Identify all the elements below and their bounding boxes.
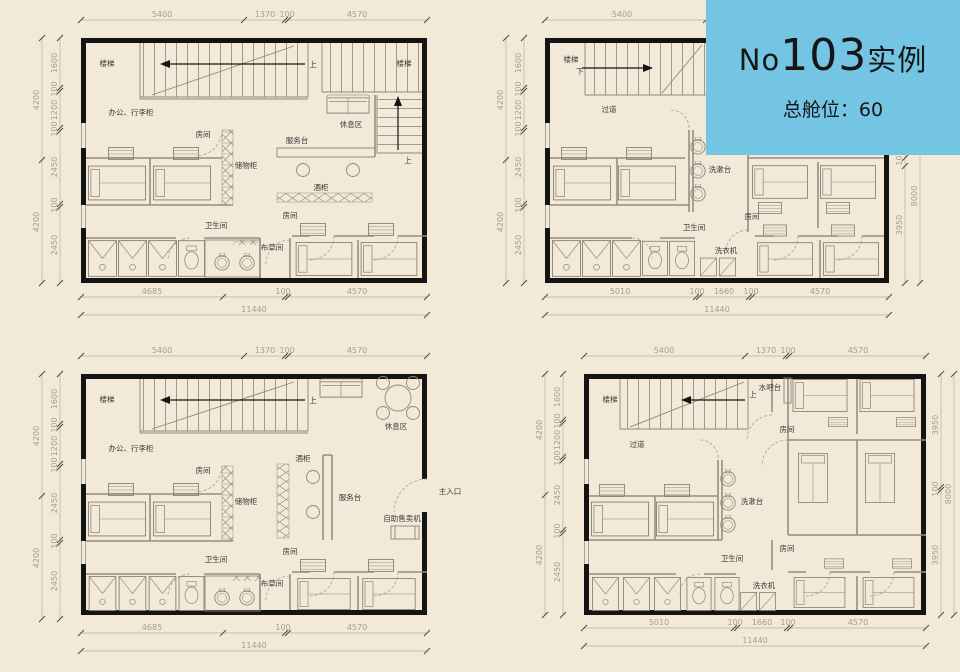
dim: 4570 [347,10,367,19]
dresser [828,417,848,426]
toilet [715,577,739,610]
shower-stall [612,241,640,277]
dresser [896,417,916,426]
dim: 1600 [514,53,523,73]
dim: 3950 [895,215,904,235]
label-lounge: 休息区 [340,119,363,129]
dim: 100 [514,197,523,212]
dresser [300,223,326,235]
dim: 4570 [347,287,367,296]
banner-no-prefix: No [739,43,780,77]
bed [553,166,610,200]
dim: 100 [553,450,562,465]
bed [591,502,648,536]
dim: 4200 [32,90,41,110]
dim: 3950 [931,545,940,565]
dim: 4685 [142,623,162,632]
dresser [826,202,850,213]
dim: 1660 [752,618,772,627]
bed [860,379,914,411]
label-room: 房间 [780,543,795,553]
washing-machine [740,593,756,611]
staircase [582,43,715,95]
dim: 100 [279,10,294,19]
label-lounge: 休息区 [385,421,408,431]
label-vending: 自助售卖机 [383,513,421,523]
dim: 4570 [347,623,367,632]
dim: 100 [50,121,59,136]
shower-stall [593,577,619,610]
floorplan-top-left: 5400 1370 100 4570 4200 4200 1600 100 12… [32,10,430,318]
shower-stall [89,576,116,610]
wash-basin [721,515,735,532]
dresser [599,484,625,496]
dim: 100 [50,417,59,432]
sink-basin [215,253,229,270]
dim: 1600 [50,389,59,409]
bed [361,242,417,275]
label-toilet: 卫生间 [721,553,744,563]
dim: 11440 [704,305,729,314]
label-corridor: 过道 [630,439,645,449]
dim: 5010 [610,287,630,296]
dim: 3950 [931,415,940,435]
dim: 2450 [553,562,562,582]
label-corridor: 过道 [602,104,617,114]
label-down: 下 [576,67,584,76]
label-service-desk: 服务台 [339,492,362,502]
shower-stall [118,241,146,277]
dim: 4200 [535,420,544,440]
dim: 1200 [514,100,523,120]
storage-cabinet [222,466,233,541]
partition-walls [86,95,427,278]
dim: 4200 [535,545,544,565]
dim: 100 [727,618,742,627]
wash-basin [721,493,735,510]
dim: 8000 [944,484,953,504]
dim: 1660 [714,287,734,296]
label-linen: 布草间 [261,242,284,252]
dim: 2450 [50,157,59,177]
furniture [88,95,416,277]
label-wine-cabinet: 酒柜 [314,182,329,192]
label-wine-cabinet: 酒柜 [296,453,311,463]
label-toilet: 卫生间 [683,222,706,232]
sofa [320,379,363,397]
label-room: 房间 [196,129,211,139]
label-storage: 储物柜 [235,496,258,506]
dim: 5400 [612,10,632,19]
banner-suffix: 实例 [867,37,927,79]
bed [153,166,210,200]
dim: 2450 [50,571,59,591]
washing-machine [719,258,735,276]
label-washer: 洗衣机 [715,245,738,255]
dim: 4570 [848,618,868,627]
dim: 100 [514,121,523,136]
dim: 100 [931,481,940,496]
dim: 100 [275,623,290,632]
dim: 100 [279,346,294,355]
dim: 1200 [50,100,59,120]
dresser [368,223,394,235]
banner-title: No103实例 [739,34,927,79]
stool [347,164,360,177]
wine-cabinet [277,193,372,202]
dim: 2450 [50,235,59,255]
dim: 1600 [553,387,562,407]
dim: 4200 [32,212,41,232]
dim: 100 [514,81,523,96]
dim: 1370 [255,346,275,355]
shower-stall [149,576,176,610]
bed [618,166,675,200]
bed [363,578,415,609]
dim: 4570 [848,346,868,355]
floorplan-sheet: { "banner": { "prefix": "No", "number": … [0,0,960,672]
dim: 5010 [649,618,669,627]
label-main-entrance: 主入口 [439,486,462,496]
dim: 1200 [50,436,59,456]
label-stairs: 楼梯 [397,58,412,68]
partition-walls [86,455,427,610]
label-room: 房间 [780,424,795,434]
label-linen: 布草间 [261,578,284,588]
dim: 100 [275,287,290,296]
banner-number: 103 [780,34,867,78]
wash-basin [721,469,735,486]
dresser [300,559,326,571]
label-washstand: 洗漱台 [741,496,764,506]
dresser [892,559,912,568]
dim: 100 [553,523,562,538]
label-toilet: 卫生间 [205,220,228,230]
sink-basin [215,588,229,605]
bed [794,577,845,607]
label-office: 办公、行李柜 [109,107,154,117]
label-storage: 储物柜 [235,160,258,170]
stool [297,164,310,177]
label-up: 上 [309,60,317,69]
dim: 2450 [514,157,523,177]
washing-machine [759,593,775,611]
bed [656,502,713,536]
toilet [669,241,694,275]
shower-stall [624,577,650,610]
bed [298,578,350,609]
staircase [620,379,748,429]
dim: 5400 [654,346,674,355]
staircase [140,43,422,153]
bed [296,242,352,275]
dim: 100 [780,346,795,355]
dim: 100 [50,81,59,96]
shower-stall [119,576,146,610]
title-banner: No103实例 总舱位：60 [706,0,960,155]
bed [820,166,875,199]
banner-subtitle: 总舱位：60 [783,95,883,122]
shower-stall [148,241,176,277]
label-stairs: 楼梯 [100,394,115,404]
sofa [327,95,370,113]
bed [752,166,807,199]
label-up: 上 [309,396,317,405]
linen-sill [233,240,260,245]
bed [863,577,914,607]
label-stairs: 楼梯 [100,58,115,68]
bed [798,453,827,502]
floorplan-bottom-left: 5400 1370 100 4570 4200 4200 1600 100 12… [32,346,461,654]
dim: 4200 [32,426,41,446]
dim: 2450 [50,493,59,513]
shower-stall [582,241,610,277]
toilet [642,241,667,275]
dim: 100 [780,618,795,627]
dim: 4570 [347,346,367,355]
dim: 100 [50,197,59,212]
storage-cabinet [222,130,233,205]
bed [757,243,812,276]
label-room: 房间 [745,211,760,221]
label-room: 房间 [283,546,298,556]
dim: 1200 [553,430,562,450]
label-toilet: 卫生间 [205,554,228,564]
chair [407,407,420,420]
dim: 100 [743,287,758,296]
label-stairs: 楼梯 [603,394,618,404]
dim: 1370 [255,10,275,19]
dim: 11440 [742,636,767,645]
toilet [178,241,204,277]
dim: 1370 [756,346,776,355]
shower-stall [655,577,681,610]
label-room: 房间 [196,465,211,475]
dresser [664,484,690,496]
bed [153,502,210,536]
sink-basin [240,588,254,605]
dim: 11440 [241,641,266,650]
dresser [831,225,855,236]
sink-counter [205,576,260,611]
sink-counter [205,240,260,277]
dresser [763,225,787,236]
shower-stall [88,241,116,277]
dresser [824,559,844,568]
shower-stall [552,241,580,277]
dim: 100 [553,413,562,428]
dim: 4200 [496,90,505,110]
wine-cabinet [277,464,289,538]
dresser [758,202,782,213]
dim: 2450 [553,485,562,505]
dresser [368,559,394,571]
dim: 4200 [496,212,505,232]
dim: 4570 [810,287,830,296]
bed [88,166,145,200]
toilet [687,577,711,610]
floorplan-bottom-right: 5400 1370 100 4570 4200 4200 1600 100 12… [535,346,957,649]
dim: 11440 [241,305,266,314]
dim: 100 [50,533,59,548]
dim: 4685 [142,287,162,296]
dim: 5400 [152,10,172,19]
stool [307,506,320,519]
bed [823,243,878,276]
chair [377,407,390,420]
dim: 100 [689,287,704,296]
label-up: 上 [404,156,412,165]
staircase [140,379,308,433]
label-up: 上 [749,390,757,399]
label-room: 房间 [283,210,298,220]
dim: 2450 [514,235,523,255]
label-office: 办公、行李柜 [109,443,154,453]
bed [88,502,145,536]
label-stairs: 楼梯 [564,54,579,64]
toilet [179,576,204,610]
dim: 1600 [50,53,59,73]
round-table [385,385,411,411]
bed [793,379,847,411]
dim: 8000 [910,186,919,206]
label-washstand: 洗漱台 [709,164,732,174]
sink-basin [240,253,254,270]
dim: 4200 [32,548,41,568]
dim: 5400 [152,346,172,355]
dim: 100 [50,457,59,472]
linen-sill [233,576,260,581]
label-washer: 洗衣机 [753,580,776,590]
label-water-bar: 水吧台 [759,382,782,392]
label-service-desk: 服务台 [286,135,309,145]
bed [865,453,894,502]
stool [307,471,320,484]
vending-machine [391,526,419,539]
washing-machine [700,258,716,276]
